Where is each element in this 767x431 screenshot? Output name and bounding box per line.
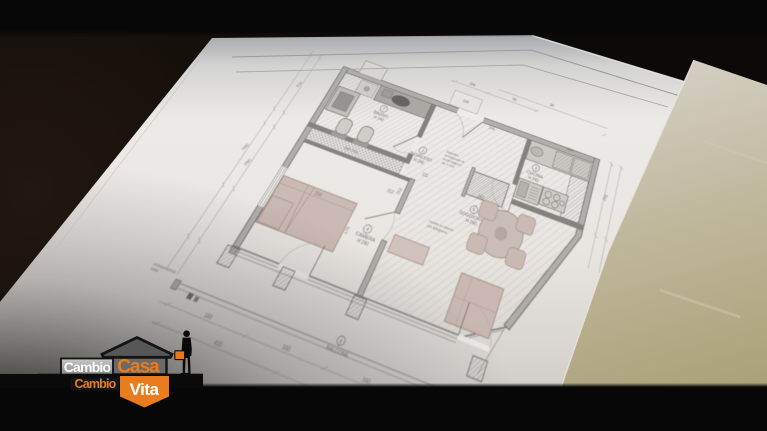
svg-text:Cambio: Cambio xyxy=(64,359,111,375)
svg-text:Cambio: Cambio xyxy=(74,377,116,391)
svg-text:Vita: Vita xyxy=(130,380,160,399)
